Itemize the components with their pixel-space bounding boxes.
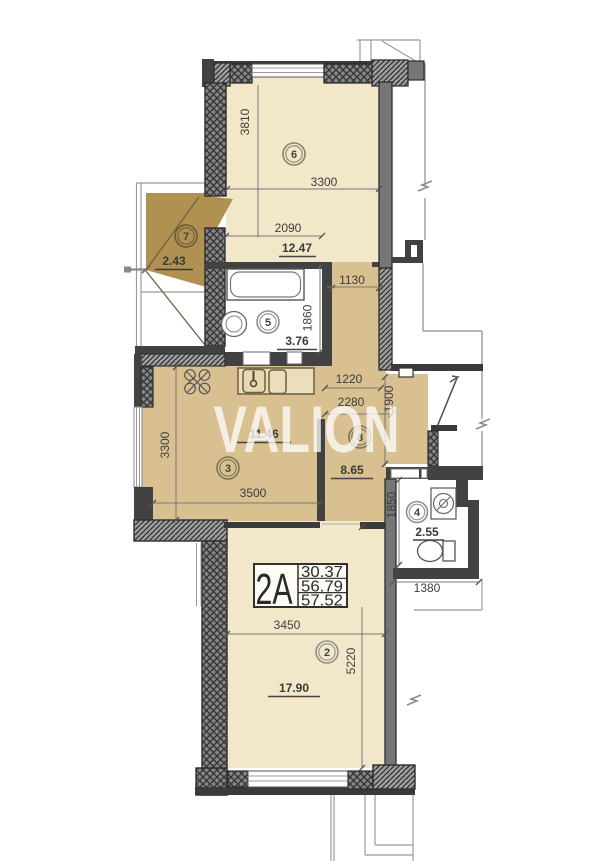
svg-text:3810: 3810 <box>238 108 252 135</box>
svg-text:1850: 1850 <box>385 491 399 518</box>
svg-text:57.52: 57.52 <box>301 593 343 610</box>
svg-text:2.55: 2.55 <box>415 525 439 539</box>
svg-text:2.43: 2.43 <box>162 254 186 268</box>
svg-text:VALION: VALION <box>214 392 400 466</box>
svg-text:3.76: 3.76 <box>285 334 309 348</box>
svg-text:3500: 3500 <box>240 486 267 500</box>
svg-text:2: 2 <box>324 647 330 659</box>
svg-text:5220: 5220 <box>344 647 358 674</box>
svg-text:3300: 3300 <box>311 175 338 189</box>
svg-text:1130: 1130 <box>339 273 365 287</box>
svg-text:2A: 2A <box>256 565 293 614</box>
svg-text:7: 7 <box>183 231 189 243</box>
svg-text:3450: 3450 <box>274 618 301 632</box>
svg-text:5: 5 <box>265 317 271 329</box>
svg-text:2090: 2090 <box>275 221 302 235</box>
svg-text:4: 4 <box>414 507 421 519</box>
svg-text:6: 6 <box>291 149 297 161</box>
svg-text:1220: 1220 <box>336 372 363 386</box>
svg-text:1860: 1860 <box>301 304 315 331</box>
svg-text:1380: 1380 <box>414 581 441 595</box>
svg-text:3300: 3300 <box>158 431 172 458</box>
svg-text:17.90: 17.90 <box>279 681 309 695</box>
svg-text:12.47: 12.47 <box>282 241 312 255</box>
